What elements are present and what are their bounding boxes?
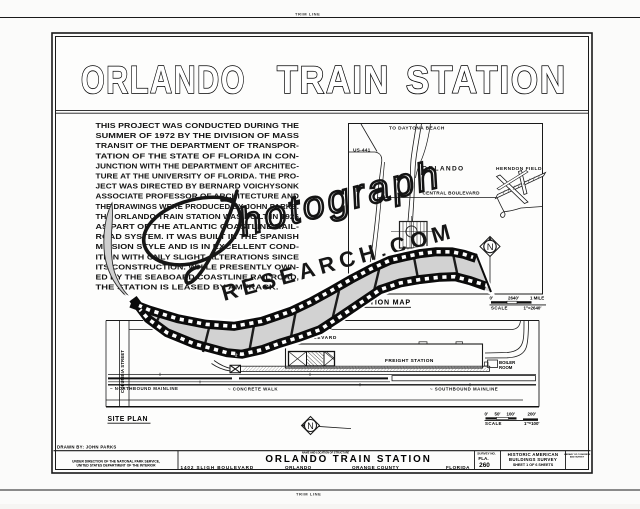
svg-text:1402 SLIGH BOULEVARD: 1402 SLIGH BOULEVARD — [181, 465, 255, 470]
svg-text:ORLANDO: ORLANDO — [285, 465, 312, 470]
svg-text:50′: 50′ — [495, 412, 501, 417]
svg-text:STATION: STATION — [406, 59, 567, 102]
svg-text:TATION OF THE STATE OF FLORIDA: TATION OF THE STATE OF FLORIDA IN CON- — [96, 151, 300, 160]
svg-text:FLORIDA: FLORIDA — [446, 465, 470, 470]
svg-text:SCALE: SCALE — [485, 421, 502, 426]
svg-text:ITION WITH ONLY SLIGHT ALTERAT: ITION WITH ONLY SLIGHT ALTERATIONS SINCE — [96, 252, 300, 261]
svg-text:TRIM LINE: TRIM LINE — [296, 492, 321, 497]
svg-text:SUMMER OF 1972 BY THE DIVISION: SUMMER OF 1972 BY THE DIVISION OF MASS — [96, 131, 300, 140]
svg-text:LIBRARY OF CONGRESS: LIBRARY OF CONGRESS — [564, 453, 591, 456]
svg-text:200′: 200′ — [528, 412, 536, 417]
svg-text:~ NORTHBOUND MAINLINE: ~ NORTHBOUND MAINLINE — [110, 386, 178, 391]
svg-text:TO DAYTONA BEACH: TO DAYTONA BEACH — [389, 125, 445, 131]
svg-text:0′: 0′ — [490, 296, 494, 301]
svg-text:AND SURVEY: AND SURVEY — [570, 456, 585, 459]
svg-text:JECT WAS DIRECTED BY BERNARD V: JECT WAS DIRECTED BY BERNARD VOICHYSONK — [96, 182, 300, 191]
svg-text:FREIGHT STATION: FREIGHT STATION — [385, 358, 434, 364]
svg-text:SURVEY NO.: SURVEY NO. — [477, 451, 496, 455]
svg-text:1 MILE: 1 MILE — [530, 296, 544, 301]
svg-text:BUILDINGS SURVEY: BUILDINGS SURVEY — [509, 457, 557, 462]
svg-text:ORLANDO: ORLANDO — [81, 59, 246, 102]
svg-text:ORANGE COUNTY: ORANGE COUNTY — [352, 465, 399, 470]
svg-text:1″=2640′: 1″=2640′ — [524, 305, 542, 310]
svg-text:~ SOUTHBOUND MAINLINE: ~ SOUTHBOUND MAINLINE — [430, 387, 498, 392]
svg-text:SCALE: SCALE — [491, 305, 508, 310]
svg-text:HERNDON FIELD: HERNDON FIELD — [496, 166, 542, 172]
svg-text:2640′: 2640′ — [508, 296, 519, 301]
svg-text:SHEET 1 OF 6 SHEETS: SHEET 1 OF 6 SHEETS — [513, 463, 554, 467]
svg-text:1″=100′: 1″=100′ — [524, 421, 540, 426]
svg-text:N: N — [307, 421, 314, 431]
svg-text:UNITED STATES DEPARTMENT OF TH: UNITED STATES DEPARTMENT OF THE INTERIOR — [77, 463, 157, 467]
svg-text:JUNCTION WITH THE DEPARTMENT O: JUNCTION WITH THE DEPARTMENT OF ARCHITEC… — [96, 161, 300, 170]
svg-text:N: N — [487, 242, 494, 253]
svg-text:100′: 100′ — [507, 412, 515, 417]
svg-text:SITE PLAN: SITE PLAN — [108, 416, 149, 423]
svg-text:TRAIN: TRAIN — [277, 59, 390, 102]
svg-text:TRANSIT OF THE DEPARTMENT OF T: TRANSIT OF THE DEPARTMENT OF TRANSPOR- — [96, 141, 300, 150]
svg-text:MISSION STYLE AND IS IN EXCELL: MISSION STYLE AND IS IN EXCELLENT COND- — [96, 242, 300, 251]
svg-text:0′: 0′ — [485, 412, 489, 417]
svg-text:260: 260 — [479, 462, 490, 469]
svg-text:~ CONCRETE WALK: ~ CONCRETE WALK — [228, 387, 278, 392]
svg-text:US-441: US-441 — [353, 147, 371, 153]
svg-text:TURE AT THE UNIVERSITY OF FLOR: TURE AT THE UNIVERSITY OF FLORIDA. THE P… — [96, 172, 300, 181]
svg-text:FLA.: FLA. — [478, 456, 488, 461]
svg-text:THIS PROJECT WAS CONDUCTED DUR: THIS PROJECT WAS CONDUCTED DURING THE — [96, 121, 300, 130]
svg-text:DRAWN BY: JOHN PARKS: DRAWN BY: JOHN PARKS — [57, 444, 117, 449]
svg-text:ROOM: ROOM — [499, 365, 513, 370]
svg-text:ORLANDO TRAIN STATION: ORLANDO TRAIN STATION — [265, 454, 431, 465]
svg-text:TRIM LINE: TRIM LINE — [295, 12, 320, 17]
